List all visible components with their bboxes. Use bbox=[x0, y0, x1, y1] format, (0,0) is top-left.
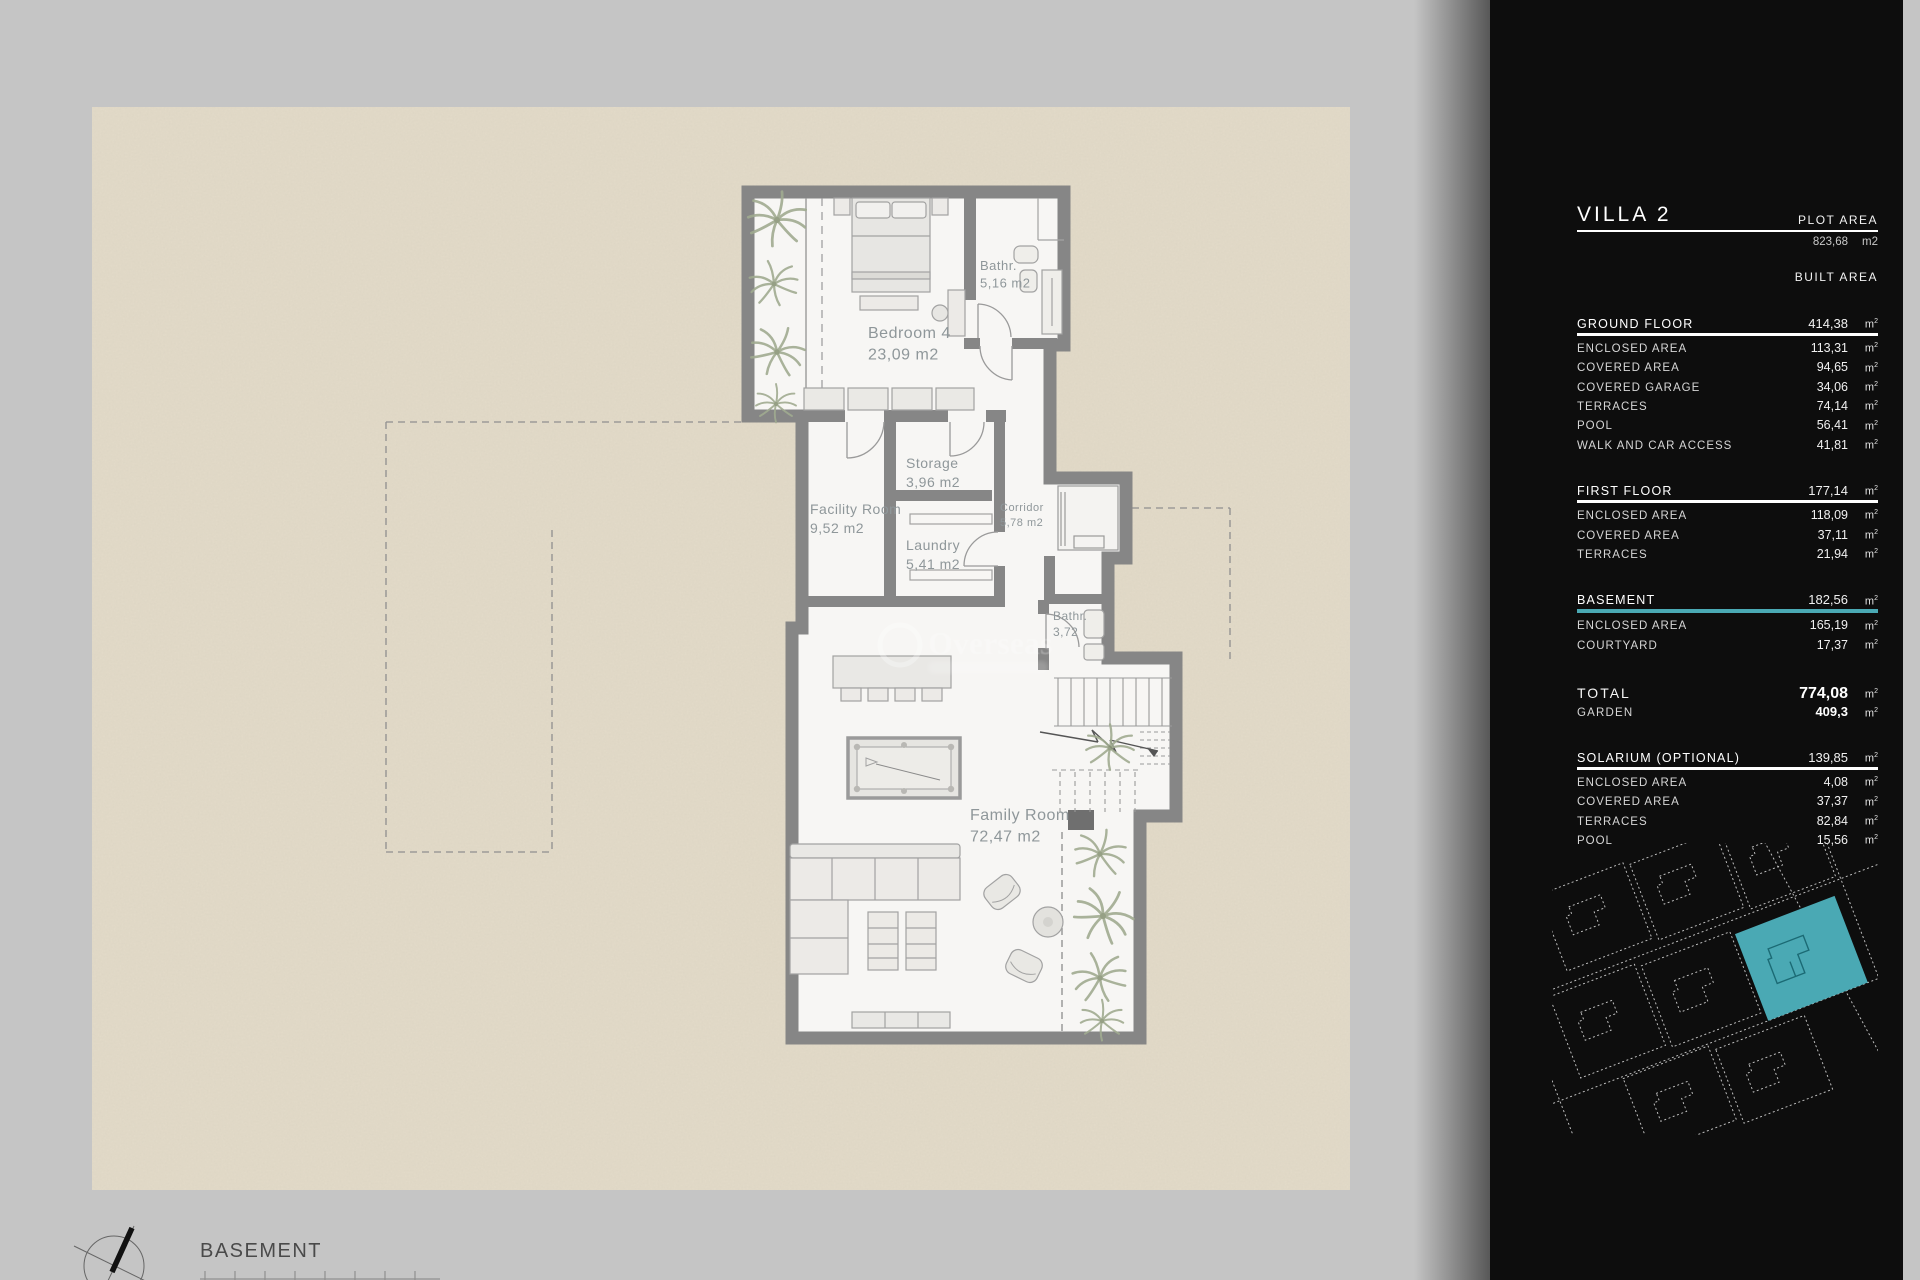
area-unit: m2 bbox=[1848, 342, 1878, 355]
area-row-value: 94,65 bbox=[1790, 360, 1848, 374]
built-area-row: BUILT AREA bbox=[1577, 270, 1878, 289]
compass-icon bbox=[74, 1226, 168, 1280]
area-row-value: 41,81 bbox=[1790, 438, 1848, 452]
area-unit: m2 bbox=[1848, 752, 1878, 765]
area-row-label: COVERED GARAGE bbox=[1577, 382, 1790, 394]
area-unit: m2 bbox=[1848, 529, 1878, 542]
total-value: 774,08 bbox=[1790, 685, 1848, 703]
built-area-label: BUILT AREA bbox=[1577, 270, 1878, 284]
section-name: GROUND FLOOR bbox=[1577, 317, 1790, 331]
area-row: TERRACES82,84m2 bbox=[1577, 814, 1878, 833]
area-unit: m2 bbox=[1848, 420, 1878, 433]
plot-area-value: 823,68 bbox=[1790, 236, 1848, 248]
area-row-value: 82,84 bbox=[1790, 814, 1848, 828]
plot-area-label: PLOT AREA bbox=[1798, 213, 1878, 227]
garden-row: GARDEN 409,3 m2 bbox=[1577, 704, 1878, 723]
sheet-title: BASEMENT bbox=[200, 1240, 322, 1263]
area-unit: m2 bbox=[1848, 318, 1878, 331]
section-name: BASEMENT bbox=[1577, 593, 1790, 607]
sidebar-shadow bbox=[1414, 0, 1490, 1280]
section-value: 182,56 bbox=[1790, 592, 1848, 607]
area-row: ENCLOSED AREA118,09m2 bbox=[1577, 508, 1878, 527]
plot-area-unit: m2 bbox=[1848, 236, 1878, 248]
page: Bedroom 423,09 m2Bathr.5,16 m2Storage3,9… bbox=[0, 0, 1920, 1280]
section-header: GROUND FLOOR414,38m2 bbox=[1577, 316, 1878, 336]
area-row: TERRACES74,14m2 bbox=[1577, 399, 1878, 418]
area-row: COVERED AREA37,37m2 bbox=[1577, 794, 1878, 813]
area-section: GROUND FLOOR414,38m2ENCLOSED AREA113,31m… bbox=[1577, 316, 1878, 457]
total-row: TOTAL 774,08 m2 bbox=[1577, 685, 1878, 704]
section-value: 177,14 bbox=[1790, 483, 1848, 498]
totals: TOTAL 774,08 m2 GARDEN 409,3 m2 bbox=[1577, 685, 1878, 724]
section-header: BASEMENT182,56m2 bbox=[1577, 592, 1878, 613]
area-unit: m2 bbox=[1848, 400, 1878, 413]
area-unit: m2 bbox=[1848, 548, 1878, 561]
area-row-label: COURTYARD bbox=[1577, 640, 1790, 652]
terrain-plot bbox=[92, 107, 1350, 1190]
highlighted-plot bbox=[1735, 896, 1868, 1021]
area-unit: m2 bbox=[1848, 381, 1878, 394]
area-row: COVERED AREA94,65m2 bbox=[1577, 360, 1878, 379]
area-section: BASEMENT182,56m2ENCLOSED AREA165,19m2COU… bbox=[1577, 592, 1878, 657]
round-table bbox=[1033, 907, 1063, 937]
area-unit: m2 bbox=[1848, 796, 1878, 809]
area-row-label: ENCLOSED AREA bbox=[1577, 510, 1790, 522]
area-unit: m2 bbox=[1848, 620, 1878, 633]
area-row-label: COVERED AREA bbox=[1577, 362, 1790, 374]
section-name: SOLARIUM (OPTIONAL) bbox=[1577, 751, 1790, 765]
section-name: FIRST FLOOR bbox=[1577, 484, 1790, 498]
area-row: WALK AND CAR ACCESS41,81m2 bbox=[1577, 438, 1878, 457]
area-row: POOL56,41m2 bbox=[1577, 418, 1878, 437]
area-row: ENCLOSED AREA113,31m2 bbox=[1577, 341, 1878, 360]
plot-area-row: 823,68 m2 bbox=[1577, 236, 1878, 255]
area-unit: m2 bbox=[1848, 509, 1878, 522]
area-row-value: 37,37 bbox=[1790, 794, 1848, 808]
sidebar-header: VILLA 2 PLOT AREA 823,68 m2 BUILT AREA bbox=[1577, 203, 1878, 290]
total-label: TOTAL bbox=[1577, 685, 1790, 701]
area-row-value: 113,31 bbox=[1790, 341, 1848, 355]
total-unit: m2 bbox=[1848, 688, 1878, 701]
villa-title: VILLA 2 bbox=[1577, 203, 1798, 227]
area-row-value: 37,11 bbox=[1790, 528, 1848, 542]
area-row-label: TERRACES bbox=[1577, 549, 1790, 561]
area-row-label: ENCLOSED AREA bbox=[1577, 343, 1790, 355]
section-header: SOLARIUM (OPTIONAL)139,85m2 bbox=[1577, 750, 1878, 770]
area-row-label: TERRACES bbox=[1577, 401, 1790, 413]
header-underline bbox=[1577, 230, 1878, 232]
area-row-value: 34,06 bbox=[1790, 380, 1848, 394]
area-row-value: 56,41 bbox=[1790, 418, 1848, 432]
nightstand bbox=[932, 198, 948, 215]
area-row-value: 17,37 bbox=[1790, 638, 1848, 652]
area-row-value: 165,19 bbox=[1790, 618, 1848, 632]
site-plan-minimap bbox=[1552, 843, 1878, 1135]
area-row-label: WALK AND CAR ACCESS bbox=[1577, 440, 1790, 452]
watermark-text: Overseas bbox=[928, 625, 1052, 661]
area-row-label: POOL bbox=[1577, 420, 1790, 432]
garden-value: 409,3 bbox=[1790, 704, 1848, 719]
tv-unit bbox=[852, 1012, 950, 1028]
nightstand bbox=[834, 198, 850, 215]
area-row: COVERED GARAGE34,06m2 bbox=[1577, 380, 1878, 399]
area-unit: m2 bbox=[1848, 815, 1878, 828]
scale-bar bbox=[200, 1271, 440, 1280]
area-row-label: COVERED AREA bbox=[1577, 530, 1790, 542]
area-unit: m2 bbox=[1848, 595, 1878, 608]
area-row-value: 21,94 bbox=[1790, 547, 1848, 561]
area-row-label: ENCLOSED AREA bbox=[1577, 777, 1790, 789]
area-row-value: 74,14 bbox=[1790, 399, 1848, 413]
area-unit: m2 bbox=[1848, 362, 1878, 375]
area-unit: m2 bbox=[1848, 439, 1878, 452]
area-row-label: TERRACES bbox=[1577, 816, 1790, 828]
billiard-table bbox=[848, 738, 960, 798]
solarium-section: SOLARIUM (OPTIONAL)139,85m2ENCLOSED AREA… bbox=[1577, 750, 1878, 853]
section-value: 139,85 bbox=[1790, 750, 1848, 765]
area-row-value: 4,08 bbox=[1790, 775, 1848, 789]
area-unit: m2 bbox=[1848, 776, 1878, 789]
area-section: FIRST FLOOR177,14m2ENCLOSED AREA118,09m2… bbox=[1577, 483, 1878, 566]
elevator bbox=[1058, 486, 1118, 550]
area-row: COURTYARD17,37m2 bbox=[1577, 638, 1878, 657]
area-row: ENCLOSED AREA4,08m2 bbox=[1577, 775, 1878, 794]
area-unit: m2 bbox=[1848, 485, 1878, 498]
area-row: TERRACES21,94m2 bbox=[1577, 547, 1878, 566]
area-row: COVERED AREA37,11m2 bbox=[1577, 528, 1878, 547]
section-header: FIRST FLOOR177,14m2 bbox=[1577, 483, 1878, 503]
area-row-value: 118,09 bbox=[1790, 508, 1848, 522]
info-sidebar: VILLA 2 PLOT AREA 823,68 m2 BUILT AREA G… bbox=[1490, 0, 1903, 1280]
area-row: ENCLOSED AREA165,19m2 bbox=[1577, 618, 1878, 637]
area-unit: m2 bbox=[1848, 639, 1878, 652]
area-section: SOLARIUM (OPTIONAL)139,85m2ENCLOSED AREA… bbox=[1577, 750, 1878, 853]
area-sections: GROUND FLOOR414,38m2ENCLOSED AREA113,31m… bbox=[1577, 316, 1878, 657]
section-value: 414,38 bbox=[1790, 316, 1848, 331]
garden-label: GARDEN bbox=[1577, 707, 1790, 719]
garden-unit: m2 bbox=[1848, 707, 1878, 720]
area-row-label: COVERED AREA bbox=[1577, 796, 1790, 808]
area-row-label: ENCLOSED AREA bbox=[1577, 620, 1790, 632]
